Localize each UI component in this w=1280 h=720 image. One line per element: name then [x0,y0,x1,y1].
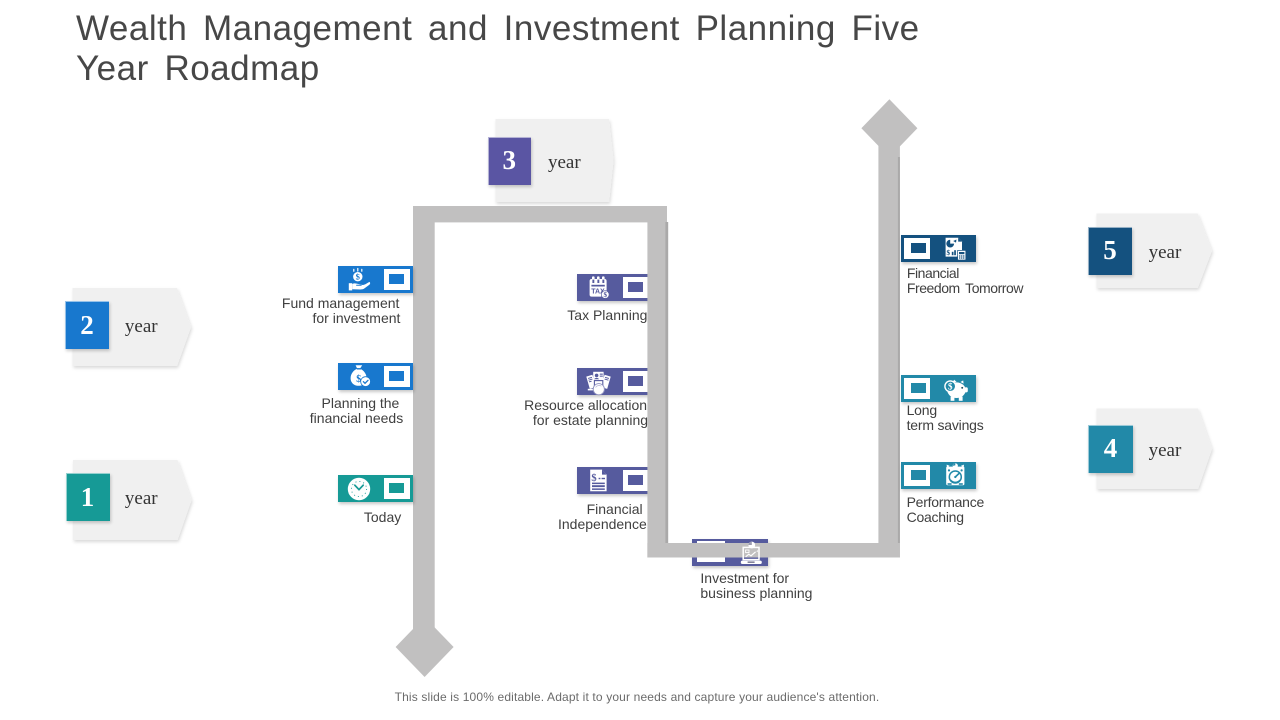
svg-text:$: $ [356,271,361,281]
svg-text:$: $ [946,249,950,257]
svg-text:$: $ [948,381,953,391]
